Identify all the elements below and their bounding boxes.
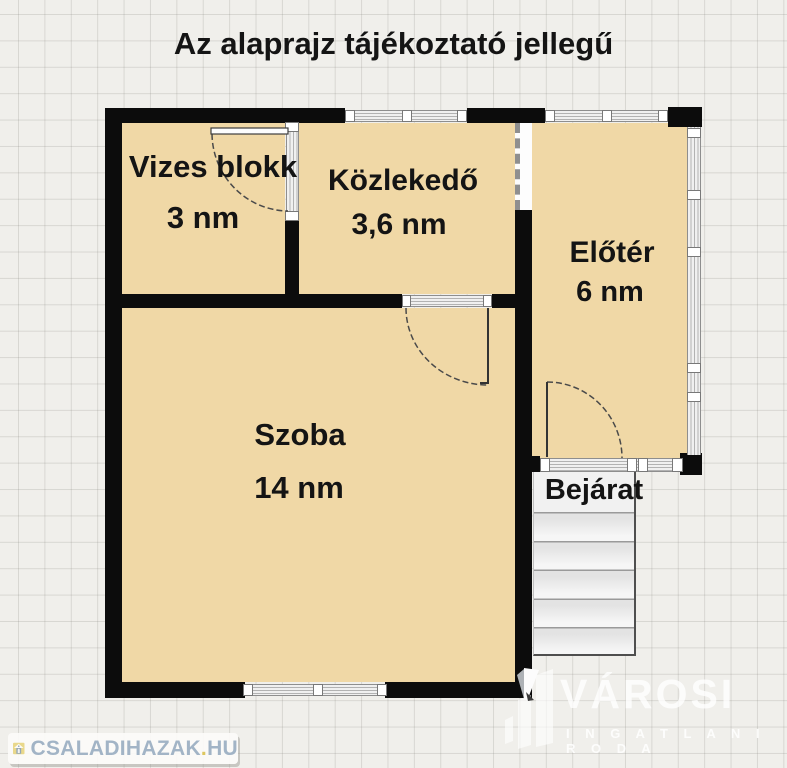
cursor-arrow-icon <box>517 668 539 701</box>
portal-watermark: CSALADIHAZAK.HU <box>8 733 238 764</box>
house-icon <box>13 737 25 760</box>
agency-watermark-name: VÁROSI <box>560 674 780 715</box>
door-swing-overlay <box>0 0 787 768</box>
floorplan-page: { "title": "Az alaprajz tájékoztató jell… <box>0 0 787 768</box>
label-entrance: Bejárat <box>514 475 674 507</box>
label-area-vizesblokk: 3 nm <box>118 201 288 235</box>
label-room-kozlekedo: Közlekedő <box>303 164 503 197</box>
label-room-vizesblokk: Vizes blokk <box>118 150 308 184</box>
label-area-kozlekedo: 3,6 nm <box>299 208 499 241</box>
label-room-szoba: Szoba <box>200 418 400 452</box>
portal-watermark-text: CSALADIHAZAK.HU <box>31 737 239 761</box>
door-arc-entrance <box>547 382 622 458</box>
label-room-eloter: Előtér <box>532 236 692 269</box>
door-arc-szoba <box>406 308 488 385</box>
label-area-eloter: 6 nm <box>532 277 688 309</box>
label-area-szoba: 14 nm <box>199 471 399 505</box>
agency-watermark-subtitle: I N G A T L A N I R O D A <box>566 726 776 756</box>
door-leaf-vizesblokk <box>211 128 288 134</box>
disclaimer-title: Az alaprajz tájékoztató jellegű <box>0 27 787 61</box>
